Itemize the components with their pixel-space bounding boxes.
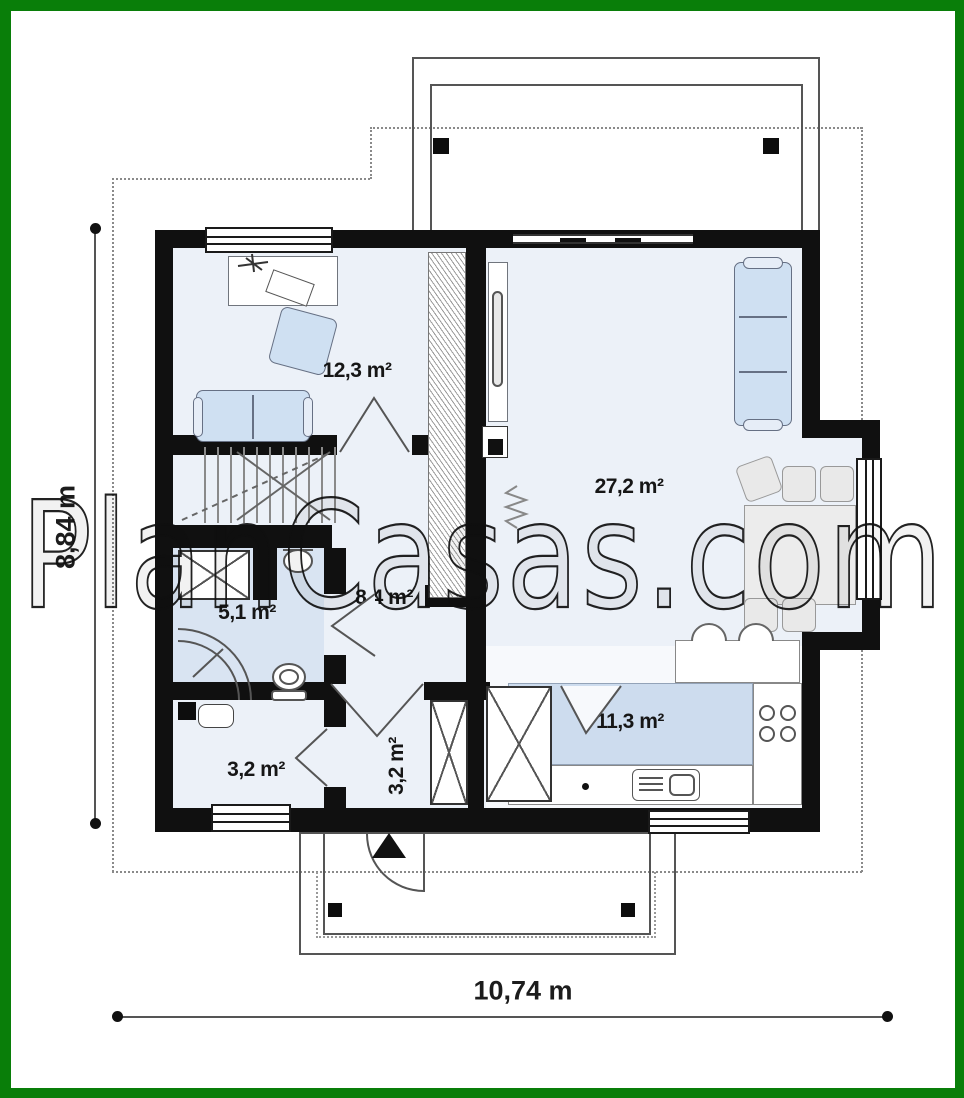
desk-lamp xyxy=(238,254,268,272)
utility-door xyxy=(296,729,327,786)
entrance-arrow-icon xyxy=(372,833,406,858)
watermark-text: PlanCasas.com xyxy=(21,470,946,642)
corridor-door xyxy=(331,684,423,736)
shower-door-line xyxy=(193,649,223,677)
stove-burner xyxy=(760,727,774,741)
kitchen-door xyxy=(561,686,621,733)
toilet-bowl xyxy=(273,664,305,690)
stove-burner xyxy=(781,727,795,741)
bedroom-door xyxy=(340,398,409,452)
stove-burner xyxy=(781,706,795,720)
toilet-tank xyxy=(272,691,306,700)
stove-burner xyxy=(760,706,774,720)
floor-plan-canvas: 8,84 m 10,74 m xyxy=(0,0,964,1098)
